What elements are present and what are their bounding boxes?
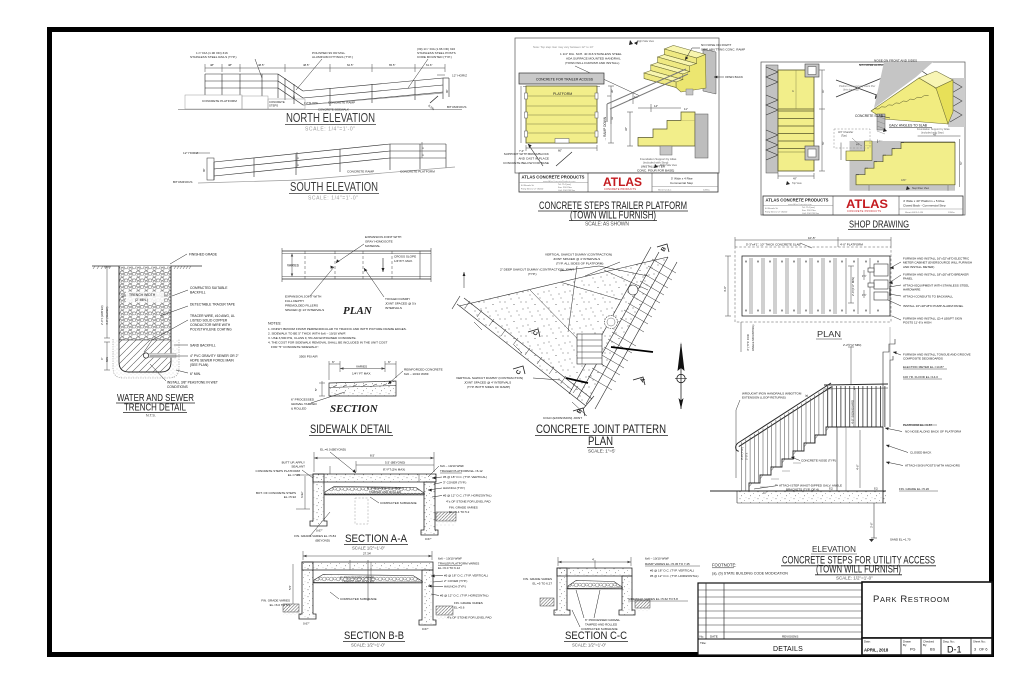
- svg-text:EXPANSION JOINT WITH: EXPANSION JOINT WITH: [285, 295, 321, 299]
- svg-text:TOOLED DUMMY: TOOLED DUMMY: [385, 297, 410, 301]
- svg-text:2. SIDEWALK TO BE 5" THICK WIT: 2. SIDEWALK TO BE 5" THICK WITH 6x6 – 10…: [268, 332, 346, 336]
- svg-text:JOINT SPACED @ 5'±: JOINT SPACED @ 5'±: [385, 302, 416, 306]
- svg-text:EXPANSION JOINT WITH: EXPANSION JOINT WITH: [365, 235, 401, 239]
- svg-text:(BEYOND): (BEYOND): [315, 539, 330, 543]
- svg-text:1/4"/FT. MAX.: 1/4"/FT. MAX.: [394, 259, 413, 263]
- svg-text:VERTICAL SAWCUT DUMMY (CONTRAC: VERTICAL SAWCUT DUMMY (CONTRACTION): [456, 376, 523, 380]
- svg-text:7": 7": [775, 483, 777, 487]
- svg-text:OPEN BACK: OPEN BACK: [725, 75, 744, 79]
- svg-text:CONCRETE PLATFORM: CONCRETE PLATFORM: [202, 99, 237, 103]
- svg-text:48": 48": [933, 133, 937, 137]
- svg-text:COMPACTED SUITABLE: COMPACTED SUITABLE: [190, 286, 228, 290]
- svg-text:HAUNCH (TYP.): HAUNCH (TYP.): [443, 486, 465, 490]
- svg-text:#5 @ 12" O.C. (TYP. HORIZONTAL: #5 @ 12" O.C. (TYP. HORIZONTAL): [650, 574, 699, 578]
- svg-text:4'-0" SIGN/GUARD: 4'-0" SIGN/GUARD: [851, 400, 855, 424]
- svg-text:44 Rosela St.: 44 Rosela St.: [521, 184, 535, 187]
- svg-text:PLATFORM: PLATFORM: [553, 92, 572, 96]
- svg-text:1½": 1½": [862, 274, 867, 278]
- svg-text:PLAN: PLAN: [343, 305, 373, 317]
- svg-text:NOTES:: NOTES:: [268, 322, 281, 326]
- svg-text:100 YR. FLOOD EL.=14.0: 100 YR. FLOOD EL.=14.0: [903, 375, 938, 379]
- svg-text:EL.=5.6: EL.=5.6: [454, 606, 465, 610]
- svg-text:EQ: EQ: [874, 487, 878, 491]
- svg-text:11": 11": [684, 107, 688, 111]
- svg-text:INTERVALS: INTERVALS: [385, 306, 402, 310]
- svg-text:48": 48": [228, 63, 232, 67]
- svg-text:BS: BS: [930, 648, 936, 652]
- svg-text:6.92': 6.92': [300, 491, 304, 498]
- svg-text:MIN: MIN: [105, 357, 109, 362]
- svg-text:BITUMINOUS: BITUMINOUS: [447, 105, 466, 109]
- svg-text:6": 6": [100, 357, 104, 360]
- svg-text:3. USE 3,500 PSI, CLASS F, 5%: 3. USE 3,500 PSI, CLASS F, 5% AIR ENTRAI…: [268, 336, 357, 340]
- svg-text:62.5": 62.5": [347, 63, 353, 67]
- svg-text:MATERIAL: MATERIAL: [365, 244, 381, 248]
- svg-text:12" HORIZ: 12" HORIZ: [183, 151, 198, 155]
- svg-text:3/4" Chamfer: 3/4" Chamfer: [838, 130, 853, 134]
- svg-text:44 Rosela St.: 44 Rosela St.: [765, 207, 779, 210]
- svg-text:EL.=7.05: EL.=7.05: [288, 473, 300, 477]
- svg-text:Sheet 5-C4-C: Sheet 5-C4-C: [658, 189, 672, 192]
- svg-text:6x6 – 10/10 WWF: 6x6 – 10/10 WWF: [440, 464, 464, 468]
- svg-text:CROSS SLOPE: CROSS SLOPE: [394, 255, 416, 259]
- svg-text:CONDUCTOR WIRE WITH: CONDUCTOR WIRE WITH: [190, 323, 231, 327]
- svg-text:D-1: D-1: [947, 645, 962, 655]
- svg-text:SCALE: 1"=5': SCALE: 1"=5': [588, 449, 615, 454]
- svg-text:BITUMINOUS: BITUMINOUS: [173, 180, 192, 184]
- svg-text:Tel: 714 (xxx): Tel: 714 (xxx): [802, 207, 815, 209]
- svg-text:4"± OF STONE FOR LEVEL PAD: 4"± OF STONE FOR LEVEL PAD: [446, 500, 491, 504]
- svg-text:(TYP.): (TYP.): [528, 272, 537, 276]
- svg-text:2'-0"± (WATER): 2'-0"± (WATER): [100, 305, 104, 325]
- svg-text:6" PROCESSED: 6" PROCESSED: [291, 398, 315, 402]
- svg-text:SCALE: 1/2"=1'-0": SCALE: 1/2"=1'-0": [572, 643, 607, 648]
- svg-text:STEPS: STEPS: [269, 104, 278, 108]
- svg-text:PLAN: PLAN: [817, 330, 841, 339]
- svg-text:27.34': 27.34': [363, 552, 372, 556]
- svg-text:Step Riser View: Step Riser View: [912, 187, 929, 190]
- svg-text:6": 6": [332, 360, 335, 364]
- svg-text:4'-0" (SEWER): 4'-0" (SEWER): [105, 306, 109, 325]
- svg-text:5.5' (BEYOND): 5.5' (BEYOND): [385, 461, 405, 465]
- svg-text:JOINT SPACED @ 4' INTERVALS: JOINT SPACED @ 4' INTERVALS: [553, 257, 600, 261]
- svg-text:65.5": 65.5": [389, 63, 395, 67]
- svg-text:HAUNCH (TYP.): HAUNCH (TYP.): [444, 585, 466, 589]
- svg-text:TAMPED AND ROLLED: TAMPED AND ROLLED: [369, 490, 402, 494]
- svg-text:BRACKETS (TYP. OF 4): BRACKETS (TYP. OF 4): [786, 488, 819, 492]
- svg-text:LISTED SOLID COPPER: LISTED SOLID COPPER: [190, 319, 228, 323]
- svg-text:48": 48": [210, 63, 214, 67]
- svg-text:(Typ): (Typ): [841, 133, 847, 137]
- svg-text:CONCRETE RAMP: CONCRETE RAMP: [347, 170, 374, 174]
- svg-text:(a): (a): [805, 394, 808, 398]
- svg-text:SCALE: 1/4"=1'-0": SCALE: 1/4"=1'-0": [308, 196, 358, 202]
- svg-text:(TYP. ALL SIDES OF PLATFORM): (TYP. ALL SIDES OF PLATFORM): [556, 262, 603, 266]
- svg-text:61.6": 61.6": [426, 63, 432, 67]
- svg-text:2" COVER (TYP.): 2" COVER (TYP.): [444, 579, 467, 583]
- svg-text:ATTACH SIGN POSTS WITH ANCHORS: ATTACH SIGN POSTS WITH ANCHORS: [905, 464, 960, 468]
- svg-text:#5 @ 12" O.C. (TYP. HORIZONTAL: #5 @ 12" O.C. (TYP. HORIZONTAL): [443, 494, 492, 498]
- svg-text:EL.=6.0 (BEYOND): EL.=6.0 (BEYOND): [320, 448, 346, 452]
- svg-text:4'-0" PLATFORM: 4'-0" PLATFORM: [840, 243, 863, 247]
- svg-text:Forty Street, CT 06410: Forty Street, CT 06410: [521, 188, 544, 191]
- svg-text:INSTALL 16"x18"x8"D PUMP ALARM: INSTALL 16"x18"x8"D PUMP ALARM PANEL: [903, 304, 964, 308]
- svg-text:PREMOLDED FILLERS: PREMOLDED FILLERS: [285, 304, 318, 308]
- svg-text:POLYETHYLENE COATING: POLYETHYLENE COATING: [190, 328, 232, 332]
- svg-text:FOOTNOTE:: FOOTNOTE:: [712, 563, 736, 568]
- svg-text:ATLAS CONCRETE PRODUCTS: ATLAS CONCRETE PRODUCTS: [766, 198, 829, 203]
- svg-text:VARIES: VARIES: [356, 365, 367, 369]
- svg-text:Platform may vary by Deck Pier: Platform may vary by Deck Pier: [839, 84, 875, 88]
- svg-text:44": 44": [856, 144, 860, 147]
- svg-text:FIN. GRADE VARIES: FIN. GRADE VARIES: [454, 601, 483, 605]
- svg-text:CONCRETE RAMP: CONCRETE RAMP: [328, 101, 355, 105]
- svg-text:4. THE COST FOR SIDEWALK REMOV: 4. THE COST FOR SIDEWALK REMOVAL SHALL B…: [268, 341, 387, 345]
- svg-text:(2' MIN.): (2' MIN.): [135, 298, 148, 302]
- svg-text:EL.=5.92: EL.=5.92: [284, 495, 296, 499]
- svg-text:HDPE SEWER FORCE MAIN: HDPE SEWER FORCE MAIN: [190, 359, 234, 363]
- svg-text:SIDE ABUTTING CONC. RAMP: SIDE ABUTTING CONC. RAMP: [701, 48, 745, 52]
- svg-text:RAMP VARIES EL.=5.45 TO 7.45: RAMP VARIES EL.=5.45 TO 7.45: [645, 562, 690, 566]
- svg-text:5": 5": [314, 388, 318, 391]
- svg-text:By:: By:: [903, 643, 907, 647]
- svg-text:Fax: 234 23xx: Fax: 234 23xx: [802, 210, 817, 212]
- svg-text:(TOWN WILL FURNISH): (TOWN WILL FURNISH): [570, 210, 656, 222]
- svg-text:FIN. GRADE VARIES EL.=5.84: FIN. GRADE VARIES EL.=5.84: [294, 534, 336, 538]
- svg-text:COLD (EXPANSION) JOINT: COLD (EXPANSION) JOINT: [543, 416, 582, 420]
- svg-text:FOR "5" CONCRETE SIDEWALK".: FOR "5" CONCRETE SIDEWALK".: [271, 345, 319, 349]
- svg-text:No.: No.: [700, 635, 705, 639]
- svg-text:CORE MOUNTED (TYP.): CORE MOUNTED (TYP.): [417, 55, 452, 59]
- svg-text:AND INSTALL METER): AND INSTALL METER): [903, 265, 934, 269]
- svg-text:14": 14": [654, 104, 658, 108]
- svg-text:#5 @ 18" O.C. (TYP. VERTICAL): #5 @ 18" O.C. (TYP. VERTICAL): [444, 574, 488, 578]
- svg-text:CONCRETE PLATFORM: CONCRETE PLATFORM: [400, 170, 435, 174]
- svg-text:56": 56": [821, 141, 825, 145]
- svg-text:TRAILER PLATFORM EL.=6.12: TRAILER PLATFORM EL.=6.12: [440, 469, 483, 473]
- svg-text:2'-2½"(2' MIN): 2'-2½"(2' MIN): [843, 343, 861, 347]
- svg-text:Top View: Top View: [792, 182, 802, 185]
- svg-text:AND CAST IN PLACE: AND CAST IN PLACE: [518, 157, 549, 161]
- svg-text:TRACER WIRE, #10 AWG, UL: TRACER WIRE, #10 AWG, UL: [190, 314, 235, 318]
- svg-text:PLAN: PLAN: [588, 434, 613, 448]
- svg-text:3": 3": [422, 147, 425, 149]
- svg-text:3": 3": [297, 164, 300, 166]
- svg-text:HARDWARE: HARDWARE: [903, 288, 920, 292]
- svg-text:4' Wide x 40" Platform + 5 Ris: 4' Wide x 40" Platform + 5 Rise: [903, 199, 945, 203]
- svg-text:DATE: DATE: [710, 635, 718, 639]
- svg-text:120Ga: 120Ga: [703, 190, 710, 192]
- svg-text:#5 @ 12" O.C. (TYP. HORIZONTAL: #5 @ 12" O.C. (TYP. HORIZONTAL): [440, 594, 489, 598]
- svg-text:6x6 – 10/10 WWF: 6x6 – 10/10 WWF: [404, 372, 429, 376]
- svg-text:(SEE PLAN): (SEE PLAN): [190, 363, 208, 367]
- svg-text:STAINLESS STEEL RAILS (TYP.): STAINLESS STEEL RAILS (TYP.): [190, 55, 237, 59]
- svg-text:VARIES: VARIES: [287, 264, 300, 268]
- svg-text:FIN. GRADE VARIES: FIN. GRADE VARIES: [261, 599, 290, 603]
- svg-text:DETECTABLE TRACER TAPE: DETECTABLE TRACER TAPE: [190, 303, 236, 307]
- svg-text:Cell: 234 233 9xx: Cell: 234 233 9xx: [558, 190, 576, 192]
- svg-text:2'-6"(2'-0" MIN): 2'-6"(2'-0" MIN): [851, 277, 855, 296]
- svg-text:DETAILS: DETAILS: [773, 644, 803, 653]
- svg-text:0.67': 0.67': [422, 627, 429, 631]
- svg-text:Closed Back - Commercial Step: Closed Back - Commercial Step: [903, 204, 946, 208]
- svg-text:4" (TYP. FOR: 4" (TYP. FOR: [746, 334, 750, 351]
- svg-text:FIN. GRADE VARIES: FIN. GRADE VARIES: [449, 506, 478, 510]
- svg-text:SHOP DRAWING: SHOP DRAWING: [849, 219, 909, 231]
- svg-text:36": 36": [293, 95, 296, 99]
- svg-text:3" COVER (TYP.): 3" COVER (TYP.): [443, 481, 466, 485]
- svg-text:Date:: Date:: [864, 640, 871, 644]
- svg-text:36": 36": [446, 89, 449, 93]
- svg-text:48.5": 48.5": [258, 63, 264, 67]
- svg-text:#5 @ 18" O.C. (TYP. VERTICAL): #5 @ 18" O.C. (TYP. VERTICAL): [443, 475, 487, 479]
- svg-text:8"/ FT.(2% MAX): 8"/ FT.(2% MAX): [383, 468, 405, 472]
- svg-text:4'-0": 4'-0": [723, 286, 727, 292]
- svg-text:120Ga: 120Ga: [948, 212, 955, 214]
- svg-text:EL.=6.0 TO 5.4: EL.=6.0 TO 5.4: [270, 603, 291, 607]
- svg-text:ADA SURFACE MOUNTED HANDRAIL: ADA SURFACE MOUNTED HANDRAIL: [566, 57, 621, 61]
- svg-text:6" MIN.: 6" MIN.: [190, 372, 201, 376]
- svg-text:EL.=5 TO 6.27: EL.=5 TO 6.27: [533, 582, 553, 586]
- svg-text:50": 50": [959, 161, 963, 165]
- svg-text:1": 1": [634, 95, 637, 99]
- svg-text:FIN. GRADE EL.=5.20: FIN. GRADE EL.=5.20: [899, 487, 929, 491]
- svg-text:COMPACTED SUBGRADE: COMPACTED SUBGRADE: [380, 501, 417, 505]
- svg-text:CONCRETE PRODUCTS: CONCRETE PRODUCTS: [604, 187, 636, 191]
- svg-text:3'-0"(TYP): 3'-0"(TYP): [740, 447, 744, 460]
- svg-text:4"± OF STONE FOR LEVEL PAD: 4"± OF STONE FOR LEVEL PAD: [447, 616, 492, 620]
- svg-text:Fax: 234 23xx: Fax: 234 23xx: [558, 187, 573, 189]
- svg-text:SECTION A-A: SECTION A-A: [345, 533, 408, 545]
- svg-text:1. FINISH: BROOM FINISH PERPEN: 1. FINISH: BROOM FINISH PERPENDICULAR TO…: [268, 327, 407, 331]
- svg-text:2" DEEP SAWCUT DUMMY (CONTRACT: 2" DEEP SAWCUT DUMMY (CONTRACTION) JOINT: [500, 268, 574, 272]
- svg-text:SUPPORT WITH BRICK/BLOCK: SUPPORT WITH BRICK/BLOCK: [504, 152, 550, 156]
- svg-text:Tel: 714 (xxx): Tel: 714 (xxx): [558, 184, 571, 186]
- svg-text:→ RAMP DOWN: → RAMP DOWN: [603, 116, 607, 141]
- svg-text:6": 6": [388, 360, 391, 364]
- svg-text:Right Side View: Right Side View: [660, 164, 677, 167]
- svg-text:ELECTRIC METER EL.=14.87: ELECTRIC METER EL.=14.87: [903, 365, 944, 369]
- svg-text:GALV. ANGLES TO SLAB: GALV. ANGLES TO SLAB: [889, 124, 928, 128]
- svg-text:Note: Top step riser may vary: Note: Top step riser may vary between 12…: [533, 45, 594, 49]
- svg-text:SECTION B-B: SECTION B-B: [344, 630, 404, 642]
- svg-text:3": 3": [297, 157, 300, 159]
- svg-text:32": 32": [624, 127, 628, 131]
- svg-text:4'-6": 4'-6": [856, 464, 860, 470]
- svg-text:CLOSED BACK: CLOSED BACK: [910, 451, 931, 455]
- svg-text:& ROLLED: & ROLLED: [291, 407, 307, 411]
- svg-text:JOINT SPACED @ 4' INTERVALS: JOINT SPACED @ 4' INTERVALS: [464, 381, 511, 385]
- svg-text:SCALE 1/2"=1'-0": SCALE 1/2"=1'-0": [352, 546, 386, 551]
- svg-text:COMPACTED SUBGRADE: COMPACTED SUBGRADE: [340, 597, 377, 601]
- svg-text:5'-0"±: 5'-0"±: [745, 452, 749, 460]
- svg-text:ATLAS CONCRETE PRODUCTS: ATLAS CONCRETE PRODUCTS: [522, 175, 585, 180]
- svg-text:PANEL: PANEL: [903, 277, 913, 281]
- svg-text:6" PROCESSED GRAVEL: 6" PROCESSED GRAVEL: [585, 618, 621, 622]
- svg-text:48.5": 48.5": [303, 63, 309, 67]
- svg-text:CONCRETE SLAB: CONCRETE SLAB: [855, 114, 884, 118]
- svg-text:Forty Street, CT 06410: Forty Street, CT 06410: [765, 211, 788, 214]
- svg-text:GRAY HOMOGOTE: GRAY HOMOGOTE: [365, 240, 393, 244]
- svg-text:12" HORIZ: 12" HORIZ: [452, 74, 467, 78]
- svg-text:TAMPED AND ROLLED: TAMPED AND ROLLED: [342, 580, 375, 584]
- svg-text:REVISIONS: REVISIONS: [782, 635, 798, 639]
- svg-text:Foundation Support by Atlas: Foundation Support by Atlas: [917, 127, 950, 131]
- svg-text:Right Side View: Right Side View: [637, 40, 654, 43]
- svg-text:N.T.S.: N.T.S.: [146, 414, 156, 418]
- svg-text:#5 @ 18" O.C. (TYP. VERTICAL): #5 @ 18" O.C. (TYP. VERTICAL): [650, 569, 694, 573]
- svg-text:SAND EL.=1.70: SAND EL.=1.70: [890, 538, 911, 542]
- svg-text:FURNISH AND INSTALL 18"x20"x8": FURNISH AND INSTALL 18"x20"x8"D BREAKER: [903, 273, 970, 277]
- svg-text:4" PVC GRAVITY SEWER OR 2": 4" PVC GRAVITY SEWER OR 2": [190, 354, 239, 358]
- svg-text:CONC. POUR FOR BASE): CONC. POUR FOR BASE): [637, 169, 674, 173]
- svg-text:(TYP. BOTH SIDES OF RAMP): (TYP. BOTH SIDES OF RAMP): [467, 385, 510, 389]
- svg-text:GRAVEL TAMPED: GRAVEL TAMPED: [291, 402, 317, 406]
- svg-text:5' Wide x 4 Rise: 5' Wide x 4 Rise: [671, 177, 693, 181]
- svg-text:EL.=6.0 TO 6.12: EL.=6.0 TO 6.12: [438, 566, 460, 570]
- svg-text:ALUMINUM FITTINGS (TYP.): ALUMINUM FITTINGS (TYP.): [312, 55, 353, 59]
- svg-text:Title:: Title:: [700, 641, 707, 645]
- svg-text:3500 PSI AIR: 3500 PSI AIR: [299, 355, 318, 359]
- svg-text:REINFORCED CONCRETE: REINFORCED CONCRETE: [404, 368, 443, 372]
- svg-text:APRIL, 2018: APRIL, 2018: [864, 648, 889, 653]
- svg-text:CONDITIONS: CONDITIONS: [167, 385, 188, 389]
- svg-text:POSTS 11'-6"± HIGH: POSTS 11'-6"± HIGH: [903, 321, 931, 325]
- svg-text:NO NOSE ON RIGHT: NO NOSE ON RIGHT: [701, 43, 731, 47]
- svg-text:SCALE: 1/4"=1'-0": SCALE: 1/4"=1'-0": [305, 127, 355, 133]
- svg-text:(this drawing): (this drawing): [843, 88, 859, 92]
- svg-text:SPACED @ 13' INTERVALS: SPACED @ 13' INTERVALS: [285, 308, 324, 312]
- svg-text:PG: PG: [910, 648, 916, 652]
- svg-text:(a), (b) STATE BUILDING CODE M: (a), (b) STATE BUILDING CODE MODICATION: [712, 572, 788, 576]
- svg-text:TRAILER PLATFORM VARIES: TRAILER PLATFORM VARIES: [438, 562, 479, 566]
- svg-text:CONCRETE FOR TRAILER ACCESS: CONCRETE FOR TRAILER ACCESS: [536, 78, 594, 82]
- svg-text:PARK RESTROOM: PARK RESTROOM: [873, 594, 950, 605]
- svg-text:0.67': 0.67': [316, 529, 323, 533]
- svg-text:DOOR: DOOR: [888, 288, 892, 296]
- svg-text:TRENCH DETAIL: TRENCH DETAIL: [124, 403, 186, 414]
- svg-text:NO NOSE ALONG BACK OF PLATFORM: NO NOSE ALONG BACK OF PLATFORM: [905, 430, 961, 434]
- svg-text:(TOWN WILL FURNISH AND INSTALL: (TOWN WILL FURNISH AND INSTALL): [565, 61, 619, 65]
- svg-text:CONCRETE PRODUCTS: CONCRETE PRODUCTS: [847, 209, 881, 213]
- svg-text:Sheet No.:: Sheet No.:: [973, 640, 986, 644]
- svg-text:48": 48": [793, 177, 797, 181]
- svg-text:SIDEWALK DETAIL: SIDEWALK DETAIL: [310, 422, 392, 436]
- svg-text:SCALE: 1/2"=1'-0": SCALE: 1/2"=1'-0": [836, 576, 873, 581]
- svg-text:FINISHED GRADE: FINISHED GRADE: [189, 253, 218, 257]
- svg-text:1/4"/ FT MAX.: 1/4"/ FT MAX.: [352, 372, 371, 376]
- svg-text:1'2"SLOPE: 1'2"SLOPE: [304, 101, 318, 105]
- svg-text:180": 180": [901, 178, 906, 182]
- svg-text:ANGLE MOUNTING): ANGLE MOUNTING): [751, 325, 755, 351]
- svg-text:Cell: 234 233 9xx: Cell: 234 233 9xx: [802, 213, 820, 215]
- svg-text:OF 6: OF 6: [979, 648, 987, 652]
- svg-text:FIN. GRADE VARIES: FIN. GRADE VARIES: [523, 577, 552, 581]
- svg-text:TAMPED AND ROLLED: TAMPED AND ROLLED: [585, 623, 618, 627]
- svg-text:VERTICAL SAWCUT DUMMY (CONTRAC: VERTICAL SAWCUT DUMMY (CONTRACTION): [545, 253, 612, 257]
- svg-text:(TOWN WILL FURNISH): (TOWN WILL FURNISH): [816, 564, 901, 576]
- svg-text:3: 3: [974, 648, 976, 652]
- svg-text:ATTACH CONDUITS TO BACKWALL: ATTACH CONDUITS TO BACKWALL: [903, 295, 953, 299]
- svg-text:SOUTH ELEVATION: SOUTH ELEVATION: [290, 180, 378, 194]
- svg-text:BACKFILL: BACKFILL: [190, 291, 206, 295]
- svg-text:3": 3": [422, 154, 425, 156]
- svg-text:ELEVATION: ELEVATION: [812, 544, 856, 554]
- svg-text:Dwg. No.:: Dwg. No.:: [943, 640, 956, 644]
- svg-text:0.67': 0.67': [303, 622, 310, 626]
- svg-text:1½": 1½": [862, 293, 867, 297]
- svg-text:FULL DEPTH: FULL DEPTH: [285, 299, 304, 303]
- svg-text:40": 40": [821, 89, 825, 93]
- svg-text:6x6 – 10/10 WWF: 6x6 – 10/10 WWF: [438, 557, 462, 561]
- svg-text:36": 36": [203, 168, 206, 172]
- svg-text:EL.=5.4 TO 5.2: EL.=5.4 TO 5.2: [449, 510, 470, 514]
- svg-text:60": 60": [558, 149, 562, 153]
- svg-text:3'-6": 3'-6": [870, 522, 874, 528]
- svg-text:EXTENSION (LOOP RETURNS): EXTENSION (LOOP RETURNS): [742, 396, 786, 400]
- svg-text:Sheet 4-W-5-1-CB: Sheet 4-W-5-1-CB: [905, 211, 923, 214]
- svg-text:1 1/4" DIA. SCH. 40 316 STAINL: 1 1/4" DIA. SCH. 40 316 STAINLESS STEEL: [560, 52, 622, 56]
- svg-text:By:: By:: [923, 643, 927, 647]
- svg-text:0.67': 0.67': [425, 537, 432, 541]
- svg-text:SCALE: AS SHOWN: SCALE: AS SHOWN: [585, 222, 629, 228]
- svg-text:8.5': 8.5': [370, 454, 375, 458]
- svg-text:CONCRETE NOSE (TYP.): CONCRETE NOSE (TYP.): [801, 459, 836, 463]
- svg-text:INSTALL 3/8" PEASTONE IN WET: INSTALL 3/8" PEASTONE IN WET: [167, 381, 218, 385]
- svg-text:SAND BACKFILL: SAND BACKFILL: [190, 344, 216, 348]
- svg-text:6x6 – 10/10 WWF: 6x6 – 10/10 WWF: [645, 557, 669, 561]
- svg-text:36": 36": [610, 89, 614, 93]
- svg-text:Commercial Step: Commercial Step: [670, 181, 693, 185]
- svg-text:5'-3"x4'1", 10" THICK CONCRETE: 5'-3"x4'1", 10" THICK CONCRETE SLAB: [746, 243, 800, 247]
- svg-text:10'-5": 10'-5": [808, 236, 816, 240]
- svg-text:SECTION C-C: SECTION C-C: [565, 630, 627, 642]
- svg-text:NOSE ON FRONT AND SIDES: NOSE ON FRONT AND SIDES: [874, 59, 917, 63]
- svg-text:NORTH ELEVATION: NORTH ELEVATION: [286, 111, 375, 125]
- svg-text:5.5': 5.5': [288, 585, 292, 590]
- svg-text:TRENCH WIDTH: TRENCH WIDTH: [129, 293, 156, 297]
- svg-text:SCALE: 1/2"=1'-0": SCALE: 1/2"=1'-0": [351, 643, 386, 648]
- svg-text:COMPOSITE DECKBOARDS: COMPOSITE DECKBOARDS: [903, 357, 943, 361]
- svg-text:SECTION: SECTION: [330, 403, 379, 415]
- svg-text:SIDEWALK VARIES EL.=5.62 TO 5.: SIDEWALK VARIES EL.=5.62 TO 5.8: [628, 597, 678, 601]
